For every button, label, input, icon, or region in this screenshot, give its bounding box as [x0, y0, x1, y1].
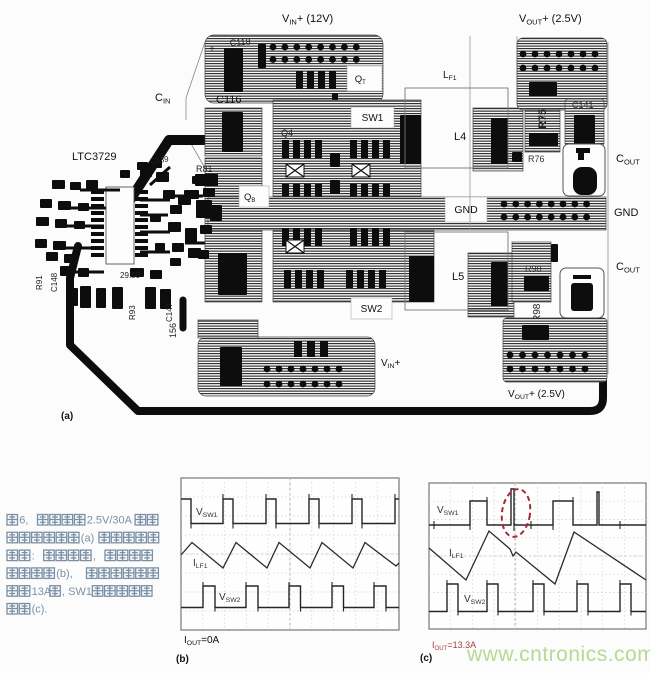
svg-text:(c): (c) [420, 653, 432, 664]
svg-text:(c).: (c). [32, 604, 48, 616]
svg-text:R76: R76 [528, 154, 545, 164]
svg-text::: : [32, 550, 35, 562]
svg-text:C141: C141 [572, 100, 594, 110]
svg-text:R93: R93 [128, 305, 137, 320]
svg-text:, SW1: , SW1 [62, 586, 92, 598]
svg-text:Q4: Q4 [281, 128, 293, 138]
svg-text:GND: GND [454, 204, 478, 216]
svg-text:(b): (b) [176, 654, 189, 665]
svg-text:C148: C148 [50, 272, 59, 292]
svg-text:SW2: SW2 [361, 304, 383, 315]
svg-text:R75: R75 [537, 109, 549, 129]
svg-text:156: 156 [168, 323, 178, 338]
svg-text:C147: C147 [165, 302, 174, 322]
svg-text:L4: L4 [454, 131, 466, 143]
svg-text:L5: L5 [452, 271, 464, 283]
svg-text:2.5V/30A: 2.5V/30A [87, 515, 133, 527]
svg-text:+: + [209, 44, 215, 55]
svg-text:R91: R91 [35, 275, 44, 290]
svg-text:(a): (a) [81, 533, 94, 545]
svg-text:13A: 13A [32, 586, 52, 598]
svg-text:(a): (a) [61, 411, 73, 422]
svg-text:C116: C116 [216, 94, 241, 106]
svg-text:6,: 6, [19, 515, 28, 527]
svg-text:,: , [93, 550, 96, 562]
svg-text:(b),: (b), [56, 568, 72, 580]
svg-text:SW1: SW1 [362, 113, 384, 124]
svg-text:29.50: 29.50 [120, 271, 141, 280]
svg-text:R81: R81 [196, 164, 213, 174]
svg-text:C118: C118 [229, 37, 251, 48]
svg-text:R90: R90 [525, 264, 542, 274]
svg-text:GND: GND [614, 207, 639, 219]
svg-text:www.cntronics.com: www.cntronics.com [466, 643, 650, 666]
svg-text:LTC3729: LTC3729 [72, 151, 116, 163]
